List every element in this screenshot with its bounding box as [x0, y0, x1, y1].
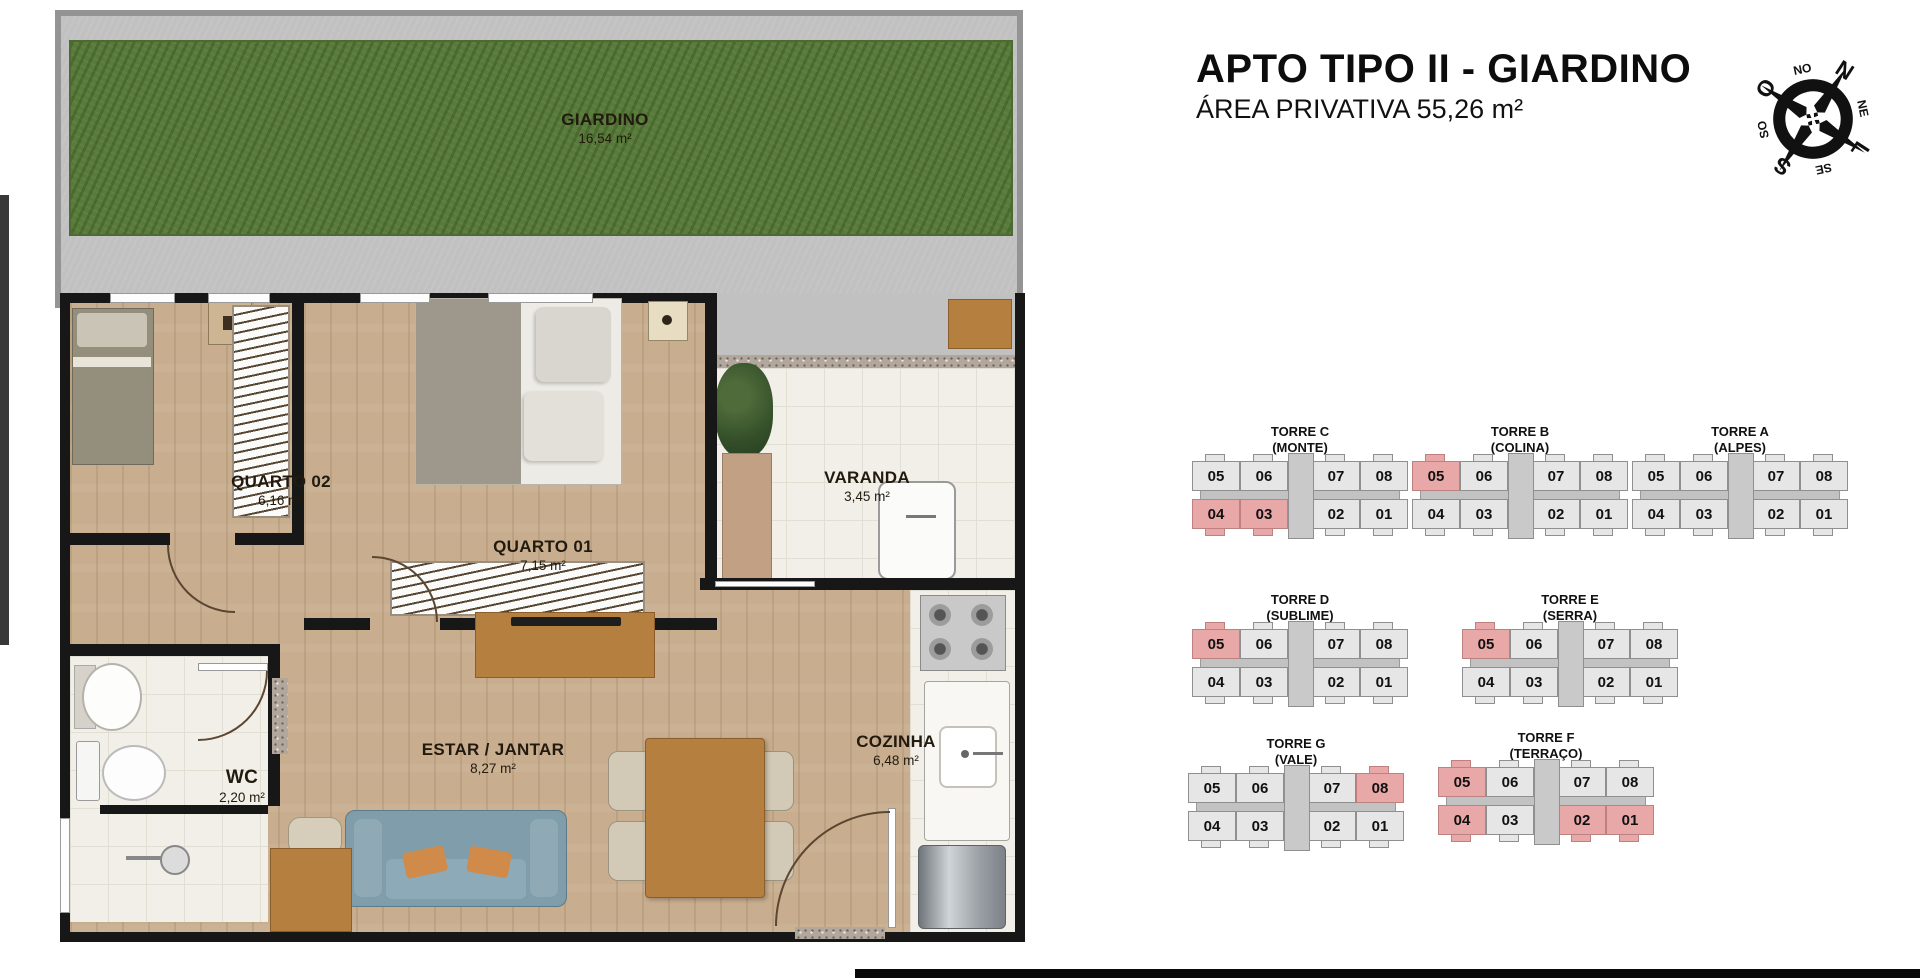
tower-name: TORRE B — [1412, 424, 1628, 440]
ac-box — [648, 301, 688, 341]
wall-q02-bottom-b — [235, 533, 304, 545]
unit-cell-01: 01 — [1580, 499, 1628, 529]
unit-cell-03: 03 — [1486, 805, 1534, 835]
unit-cell-08: 08 — [1630, 629, 1678, 659]
unit-cell-05: 05 — [1412, 461, 1460, 491]
room-area: 6,16 m² — [181, 493, 381, 508]
label-wc: WC 2,20 m² — [152, 767, 332, 805]
unit-cell-06: 06 — [1510, 629, 1558, 659]
unit-cell-07: 07 — [1532, 461, 1580, 491]
unit-cell-01: 01 — [1630, 667, 1678, 697]
unit-cell-01: 01 — [1800, 499, 1848, 529]
apartment-outline — [60, 293, 1025, 942]
page-subtitle: ÁREA PRIVATIVA 55,26 m² — [1196, 94, 1816, 125]
unit-cell-08: 08 — [1580, 461, 1628, 491]
window-q02-b — [208, 293, 270, 303]
unit-cell-06: 06 — [1680, 461, 1728, 491]
unit-cell-02: 02 — [1532, 499, 1580, 529]
tower-diagram-torre-e: TORRE E (SERRA) 0506070804030201 — [1462, 592, 1678, 705]
label-quarto01: QUARTO 01 7,15 m² — [443, 537, 643, 573]
label-varanda: VARANDA 3,45 m² — [767, 468, 967, 504]
unit-cell-04: 04 — [1412, 499, 1460, 529]
unit-cell-06: 06 — [1240, 629, 1288, 659]
unit-cell-03: 03 — [1236, 811, 1284, 841]
unit-cell-05: 05 — [1188, 773, 1236, 803]
label-quarto02: QUARTO 02 6,16 m² — [181, 472, 381, 508]
unit-cell-02: 02 — [1582, 667, 1630, 697]
wall-wc-top — [70, 644, 280, 656]
unit-cell-06: 06 — [1236, 773, 1284, 803]
compass-no: NO — [1792, 60, 1813, 77]
unit-cell-03: 03 — [1460, 499, 1508, 529]
page-title: APTO TIPO II - GIARDINO — [1196, 48, 1816, 90]
label-estar-jantar: ESTAR / JANTAR 8,27 m² — [393, 740, 593, 776]
dining-table — [645, 738, 765, 898]
bed-blanket — [416, 299, 521, 484]
unit-cell-05: 05 — [1192, 461, 1240, 491]
left-edge-wall-strip — [0, 195, 9, 645]
tower-core — [1534, 759, 1560, 845]
sofa — [345, 810, 567, 907]
window-q01-b — [488, 293, 593, 303]
unit-cell-05: 05 — [1192, 629, 1240, 659]
unit-cell-04: 04 — [1462, 667, 1510, 697]
tower-core — [1288, 453, 1314, 539]
bed-pillow — [77, 313, 147, 347]
unit-cell-08: 08 — [1360, 461, 1408, 491]
unit-cell-02: 02 — [1308, 811, 1356, 841]
burner-4 — [971, 638, 993, 660]
bottom-black-bar — [855, 969, 1920, 978]
unit-cell-05: 05 — [1632, 461, 1680, 491]
unit-cell-08: 08 — [1356, 773, 1404, 803]
sofa-arm-right — [530, 819, 558, 897]
single-bed — [72, 308, 154, 465]
tower-diagram-torre-d: TORRE D (SUBLIME) 0506070804030201 — [1192, 592, 1408, 705]
unit-cell-03: 03 — [1510, 667, 1558, 697]
compass-n: N — [1831, 55, 1858, 85]
bed-pillow-1 — [536, 307, 611, 382]
window-q02-a — [110, 293, 175, 303]
varanda-door-window — [715, 581, 815, 587]
burner-1 — [929, 604, 951, 626]
room-area: 16,54 m² — [495, 131, 715, 146]
room-area: 2,20 m² — [152, 790, 332, 805]
varanda-planter — [722, 453, 772, 580]
tower-name: TORRE C — [1192, 424, 1408, 440]
tower-grid: 0506070804030201 — [1438, 767, 1654, 843]
tower-core — [1508, 453, 1534, 539]
unit-cell-07: 07 — [1558, 767, 1606, 797]
room-area: 3,45 m² — [767, 489, 967, 504]
unit-cell-06: 06 — [1460, 461, 1508, 491]
varanda-shelf — [948, 299, 1012, 349]
tower-grid: 0506070804030201 — [1412, 461, 1628, 537]
unit-cell-03: 03 — [1240, 667, 1288, 697]
unit-cell-08: 08 — [1360, 629, 1408, 659]
label-cozinha: COZINHA 6,48 m² — [796, 732, 996, 768]
unit-cell-06: 06 — [1240, 461, 1288, 491]
room-area: 7,15 m² — [443, 558, 643, 573]
shower-pipe — [126, 856, 162, 860]
wc-sink — [82, 663, 142, 731]
tower-name: TORRE E — [1462, 592, 1678, 608]
unit-cell-04: 04 — [1192, 499, 1240, 529]
wall-q02-bottom-a — [60, 533, 170, 545]
tank-faucet — [906, 515, 936, 518]
unit-cell-03: 03 — [1680, 499, 1728, 529]
tower-grid: 0506070804030201 — [1192, 629, 1408, 705]
unit-cell-07: 07 — [1312, 461, 1360, 491]
tower-core — [1284, 765, 1310, 851]
tower-diagram-torre-f: TORRE F (TERRAÇO) 0506070804030201 — [1438, 730, 1654, 843]
wc-door-sill — [272, 678, 288, 754]
tower-diagram-torre-c: TORRE C (MONTE) 0506070804030201 — [1192, 424, 1408, 537]
unit-cell-04: 04 — [1188, 811, 1236, 841]
unit-cell-03: 03 — [1240, 499, 1288, 529]
fridge — [918, 845, 1006, 929]
entry-sill — [795, 927, 885, 939]
wc-door-leaf — [198, 663, 268, 671]
desk — [270, 848, 352, 932]
room-name: VARANDA — [767, 468, 967, 488]
tower-name: TORRE F — [1438, 730, 1654, 746]
unit-cell-07: 07 — [1308, 773, 1356, 803]
unit-cell-07: 07 — [1312, 629, 1360, 659]
tower-grid: 0506070804030201 — [1192, 461, 1408, 537]
tower-grid: 0506070804030201 — [1462, 629, 1678, 705]
room-name: COZINHA — [796, 732, 996, 752]
tower-grid: 0506070804030201 — [1632, 461, 1848, 537]
tower-core — [1558, 621, 1584, 707]
double-bed — [415, 298, 622, 485]
window-shower — [60, 818, 70, 913]
room-name: WC — [152, 767, 332, 789]
compass-ne: NE — [1854, 99, 1871, 118]
wall-q01-right — [705, 293, 717, 578]
unit-cell-01: 01 — [1360, 499, 1408, 529]
compass-se: SE — [1814, 160, 1833, 177]
flyer-page: GIARDINO 16,54 m² QUARTO 02 6,16 m² QUAR… — [0, 0, 1920, 978]
tv-icon — [511, 617, 621, 626]
label-giardino: GIARDINO 16,54 m² — [495, 110, 715, 146]
tower-diagram-torre-b: TORRE B (COLINA) 0506070804030201 — [1412, 424, 1628, 537]
tv-console — [475, 612, 655, 678]
plant-icon — [715, 363, 773, 458]
tower-name: TORRE G — [1188, 736, 1404, 752]
burner-2 — [971, 604, 993, 626]
unit-cell-02: 02 — [1312, 667, 1360, 697]
unit-cell-02: 02 — [1752, 499, 1800, 529]
unit-cell-01: 01 — [1606, 805, 1654, 835]
tower-diagram-torre-g: TORRE G (VALE) 0506070804030201 — [1188, 736, 1404, 849]
window-q01-a — [360, 293, 430, 303]
unit-cell-04: 04 — [1632, 499, 1680, 529]
tower-core — [1728, 453, 1754, 539]
header: APTO TIPO II - GIARDINO ÁREA PRIVATIVA 5… — [1196, 48, 1816, 125]
unit-cell-02: 02 — [1312, 499, 1360, 529]
wall-q01-bottom-a — [304, 618, 370, 630]
tower-name: TORRE A — [1632, 424, 1848, 440]
unit-cell-05: 05 — [1438, 767, 1486, 797]
tower-grid: 0506070804030201 — [1188, 773, 1404, 849]
bed-pillow-2 — [524, 391, 604, 461]
ac-box-detail — [662, 315, 672, 325]
tower-diagram-torre-a: TORRE A (ALPES) 0506070804030201 — [1632, 424, 1848, 537]
wall-wc-shower — [100, 805, 268, 814]
unit-cell-08: 08 — [1606, 767, 1654, 797]
unit-cell-01: 01 — [1356, 811, 1404, 841]
tower-name: TORRE D — [1192, 592, 1408, 608]
compass-so: SO — [1755, 120, 1772, 140]
room-name: ESTAR / JANTAR — [393, 740, 593, 760]
tower-core — [1288, 621, 1314, 707]
unit-cell-05: 05 — [1462, 629, 1510, 659]
unit-cell-02: 02 — [1558, 805, 1606, 835]
compass-rose-icon: N NE L SE S SO O NO — [1738, 34, 1888, 204]
room-name: QUARTO 02 — [181, 472, 381, 492]
stove — [920, 595, 1006, 671]
toilet-tank — [76, 741, 100, 801]
unit-cell-08: 08 — [1800, 461, 1848, 491]
bed-sheet-fold — [73, 357, 151, 367]
room-name: QUARTO 01 — [443, 537, 643, 557]
unit-cell-04: 04 — [1192, 667, 1240, 697]
burner-3 — [929, 638, 951, 660]
floor-plan: GIARDINO 16,54 m² QUARTO 02 6,16 m² QUAR… — [55, 10, 1030, 945]
room-area: 6,48 m² — [796, 753, 996, 768]
room-area: 8,27 m² — [393, 761, 593, 776]
unit-cell-01: 01 — [1360, 667, 1408, 697]
sofa-arm-left — [354, 819, 382, 897]
unit-cell-06: 06 — [1486, 767, 1534, 797]
unit-cell-07: 07 — [1752, 461, 1800, 491]
unit-cell-07: 07 — [1582, 629, 1630, 659]
shower-drain — [160, 845, 190, 875]
unit-cell-04: 04 — [1438, 805, 1486, 835]
room-name: GIARDINO — [495, 110, 715, 130]
